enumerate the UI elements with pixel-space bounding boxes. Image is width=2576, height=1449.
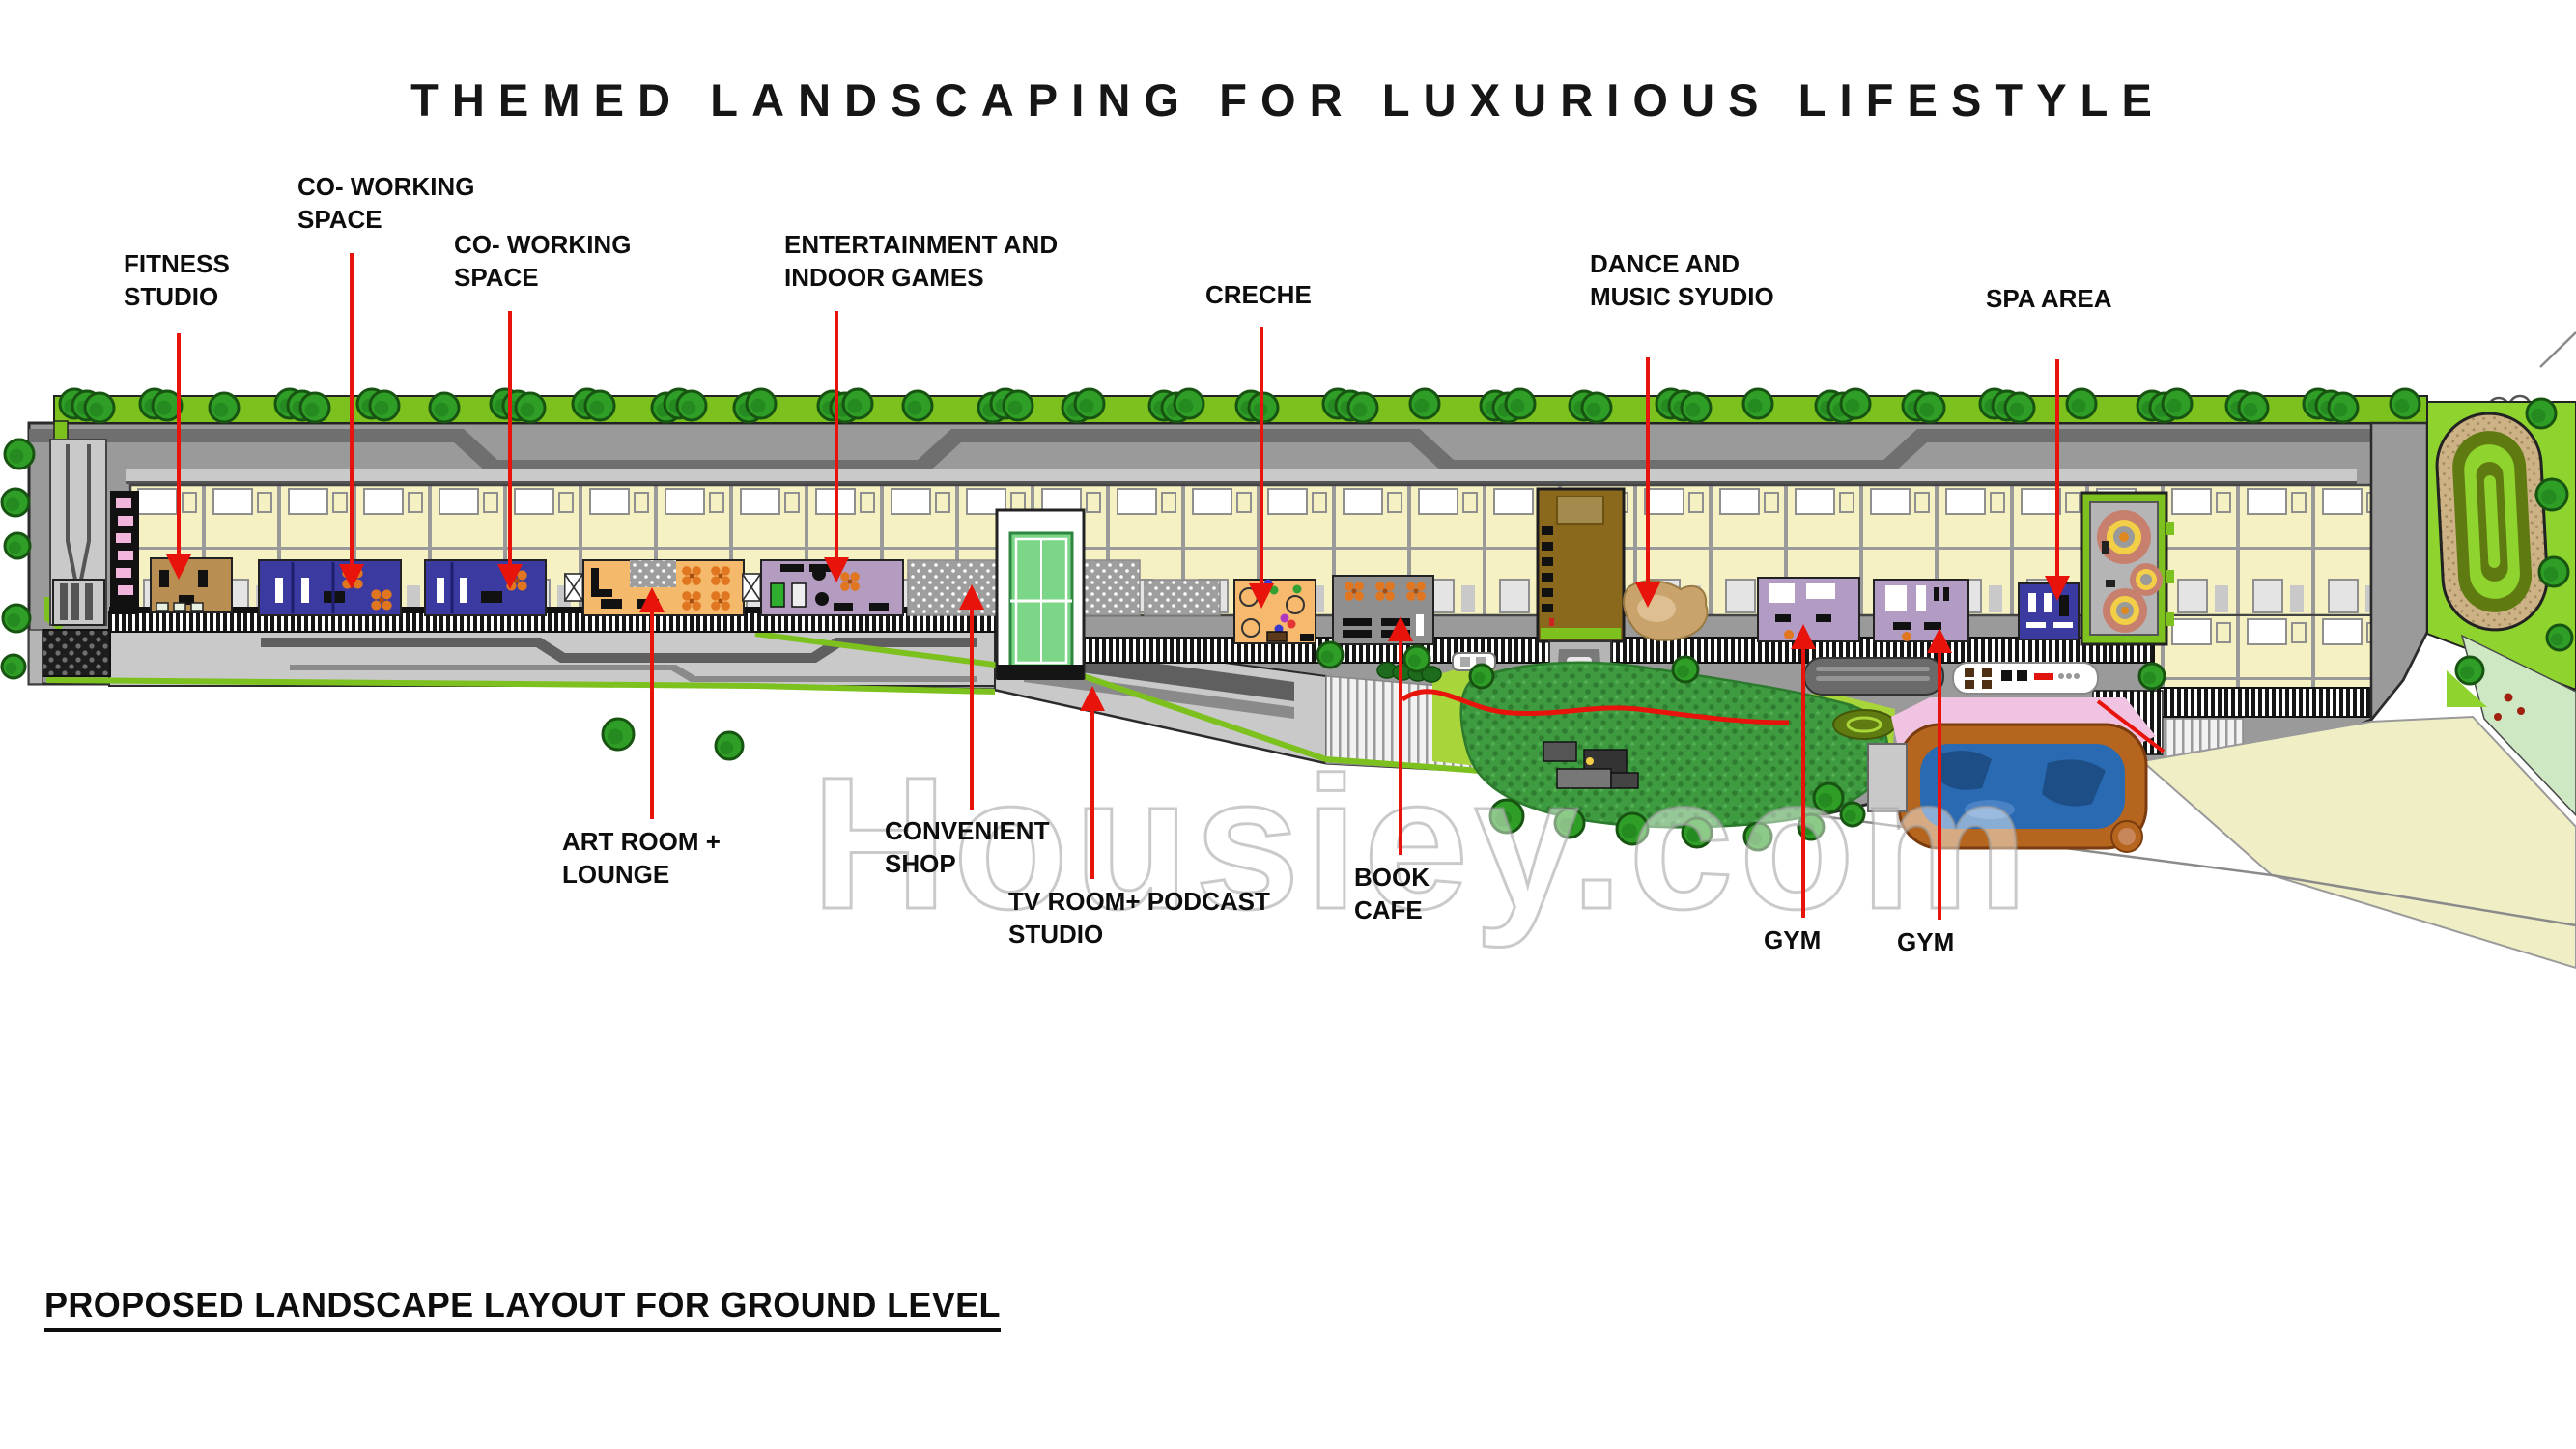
label-line: CO- WORKING (454, 228, 631, 261)
label-line: GYM (1764, 923, 1821, 956)
label-coworking-2: CO- WORKINGSPACE (454, 228, 631, 294)
label-line: CO- WORKING (297, 170, 474, 203)
label-line: MUSIC SYUDIO (1590, 280, 1774, 313)
label-line: BOOK (1354, 861, 1430, 894)
label-line: ENTERTAINMENT AND (784, 228, 1058, 261)
label-line: STUDIO (1008, 918, 1270, 951)
label-coworking-1: CO- WORKINGSPACE (297, 170, 474, 236)
footer-heading: PROPOSED LANDSCAPE LAYOUT FOR GROUND LEV… (44, 1285, 1001, 1332)
label-creche: CRECHE (1205, 278, 1312, 311)
label-line: ART ROOM + (562, 825, 721, 858)
gym-room-2 (1874, 580, 1968, 641)
page-title: THEMED LANDSCAPING FOR LUXURIOUS LIFESTY… (0, 73, 2576, 127)
label-art-room: ART ROOM +LOUNGE (562, 825, 721, 891)
label-line: SPACE (454, 261, 631, 294)
spa-area-panel (2081, 493, 2174, 644)
label-line: CAFE (1354, 894, 1430, 926)
label-line: SPACE (297, 203, 474, 236)
label-line: DANCE AND (1590, 247, 1774, 280)
label-spa-area: SPA AREA (1986, 282, 2112, 315)
coworking-room-1 (259, 560, 401, 615)
label-fitness-studio: FITNESSSTUDIO (124, 247, 230, 313)
running-track (2434, 411, 2550, 632)
label-line: SHOP (885, 847, 1049, 880)
art-room-lounge-room (565, 560, 761, 615)
label-convenient-shop: CONVENIENTSHOP (885, 814, 1049, 880)
creche-room (1234, 580, 1316, 644)
label-dance-music: DANCE ANDMUSIC SYUDIO (1590, 247, 1774, 313)
label-line: CRECHE (1205, 278, 1312, 311)
label-tv-room: TV ROOM+ PODCASTSTUDIO (1008, 885, 1270, 951)
label-entertainment: ENTERTAINMENT ANDINDOOR GAMES (784, 228, 1058, 294)
spa-room (2019, 583, 2079, 639)
drop-off-road (1804, 658, 1943, 695)
book-cafe-room (1333, 576, 1433, 644)
label-line: GYM (1897, 925, 1954, 958)
label-gym-1: GYM (1764, 923, 1821, 956)
coworking-room-2 (425, 560, 546, 615)
label-line: TV ROOM+ PODCAST (1008, 885, 1270, 918)
label-book-cafe: BOOKCAFE (1354, 861, 1430, 926)
label-gym-2: GYM (1897, 925, 1954, 958)
shuttle (1953, 663, 2098, 694)
label-line: LOUNGE (562, 858, 721, 891)
gym-room-1 (1758, 578, 1859, 641)
label-line: FITNESS (124, 247, 230, 280)
label-line: STUDIO (124, 280, 230, 313)
badminton-court (997, 510, 1084, 680)
label-line: SPA AREA (1986, 282, 2112, 315)
label-line: INDOOR GAMES (784, 261, 1058, 294)
dance-music-room (1624, 581, 1707, 639)
page: Housiey.com THEMED LANDSCAPING FOR LUXUR… (0, 0, 2576, 1449)
label-line: CONVENIENT (885, 814, 1049, 847)
